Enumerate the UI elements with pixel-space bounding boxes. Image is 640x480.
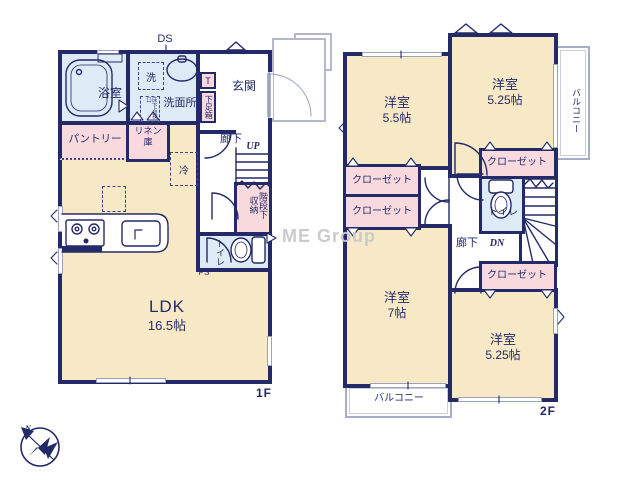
ds-label: DS: [150, 33, 180, 46]
entrance-porch: [272, 38, 326, 122]
pantry-label: パントリー: [60, 133, 130, 146]
closet-b-label: クローゼット: [481, 157, 553, 169]
shoe-cabinet-t: T: [200, 72, 216, 89]
window: [97, 50, 119, 54]
window: [58, 248, 63, 274]
ps-label: PS: [194, 268, 214, 278]
fridge-box: 冷: [170, 152, 198, 186]
closet-d-label: クローゼット: [481, 270, 553, 282]
balcony-right-label: バルコニー: [566, 74, 580, 146]
toilet-2f-label: トイレ: [486, 207, 520, 219]
balcony-bottom-label: バルコニー: [363, 393, 435, 405]
washer-box: 洗: [138, 62, 164, 90]
shoe-t-label: T: [205, 76, 211, 86]
room-toilet-2f: [479, 176, 525, 234]
bath-label: 浴室: [86, 86, 134, 101]
floor2-label: 2F: [528, 404, 556, 419]
window: [58, 206, 63, 232]
window: [370, 383, 446, 388]
ldk-label: LDK 16.5帖: [127, 297, 207, 334]
closet-c-label: クローゼット: [346, 206, 418, 218]
window: [267, 336, 272, 366]
room-toilet-1f: [196, 232, 272, 272]
window: [553, 308, 558, 334]
fridge-label: 冷: [179, 162, 189, 177]
entrance-label: 玄関: [222, 79, 266, 94]
dn-label: DN: [484, 238, 510, 250]
room-2f-a-label: 洋室 5.5帖: [362, 95, 432, 125]
room-2f-c-label: 洋室 7帖: [362, 290, 432, 320]
window: [553, 64, 558, 148]
closet-a-label: クローゼット: [346, 175, 418, 187]
room-2f-b-label: 洋室 5.25帖: [470, 77, 540, 107]
up-label: UP: [240, 141, 266, 153]
ldk-floor-hatch: [102, 186, 126, 212]
room-2f-d-label: 洋室 5.25帖: [468, 332, 538, 362]
floor-plan: 洗 床下点検口 冷 T 下足箱 DS 浴室 洗面所 玄関 パントリー リネン庫 …: [0, 0, 640, 480]
window: [96, 378, 166, 383]
linen-label: リネン庫: [131, 126, 165, 148]
window: [458, 397, 542, 402]
floor1-label: 1F: [244, 386, 272, 401]
washer-label: 洗: [146, 69, 156, 84]
washroom-label: 洗面所: [150, 97, 210, 110]
under-stair-label: 階段下収納: [241, 188, 267, 222]
front-door-opening: [267, 72, 273, 118]
compass-n-label: N: [22, 424, 34, 434]
watermark: ME Group: [282, 226, 376, 247]
toilet-1f-label: トイレ: [212, 236, 224, 268]
hallway-2f-label: 廊下: [452, 237, 482, 250]
window: [362, 52, 442, 57]
